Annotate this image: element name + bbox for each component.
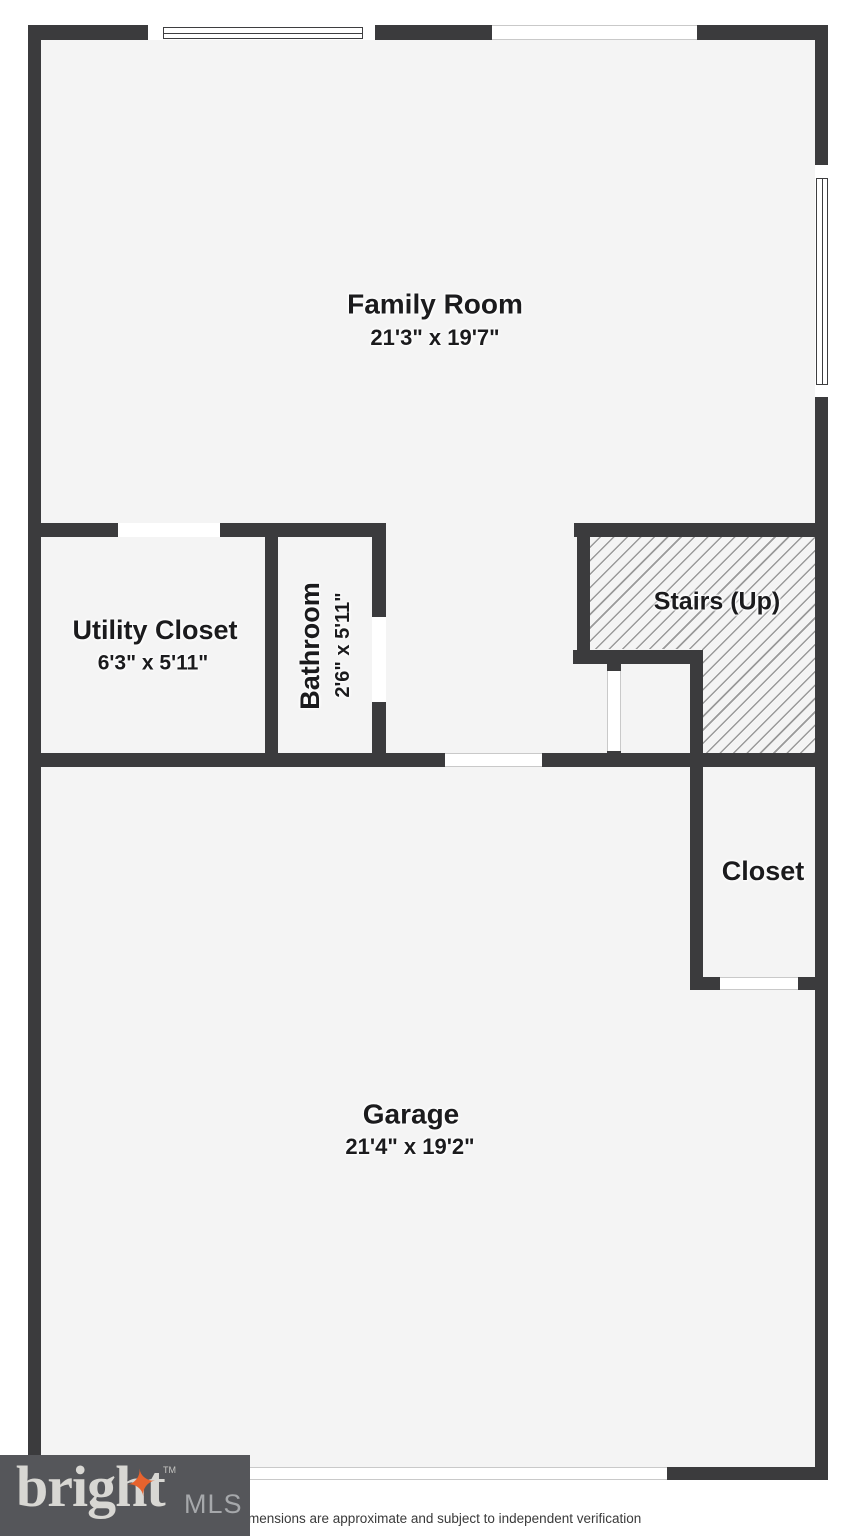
family-room-dimensions: 21'3" x 19'7" [370,326,499,350]
brand-star-icon: ✦ [123,1460,160,1507]
wall-middle-garage-divider [28,753,828,767]
wall-stairs-closet-left [690,650,703,990]
utility-closet-label: Utility Closet [72,616,237,646]
garage-door-opening [230,1467,667,1480]
garage-dimensions: 21'4" x 19'2" [345,1135,474,1159]
bathroom-dimensions: 2'6" x 5'11" [332,592,354,697]
brand-logo: bright ✦ TM MLS [0,1455,250,1536]
wall-utility-bathroom-divider [265,523,278,767]
utility-closet-dimensions: 6'3" x 5'11" [98,651,209,674]
bathroom-label: Bathroom [296,582,326,710]
door-opening-hall-to-garage [445,753,542,767]
opening-top-right [492,25,697,40]
wall-stairs-left [577,523,590,650]
stairs-label: Stairs (Up) [654,588,780,616]
garage-label: Garage [363,1100,460,1131]
door-opening-closet [720,977,798,990]
wall-stairs-inner [573,650,703,664]
door-opening-stair-entry [607,671,621,751]
closet-label: Closet [722,857,805,887]
family-room-label: Family Room [347,290,523,321]
trademark-symbol: TM [163,1465,176,1475]
window-symbol-top [163,27,363,39]
room-family-room-area [41,39,815,523]
wall-stairs-top [574,523,828,537]
door-opening-utility-closet [118,523,220,537]
window-symbol-right [816,178,828,385]
door-opening-bathroom [372,617,386,702]
disclaimer-text: mensions are approximate and subject to … [248,1511,641,1526]
brand-mls-text: MLS [184,1489,243,1520]
